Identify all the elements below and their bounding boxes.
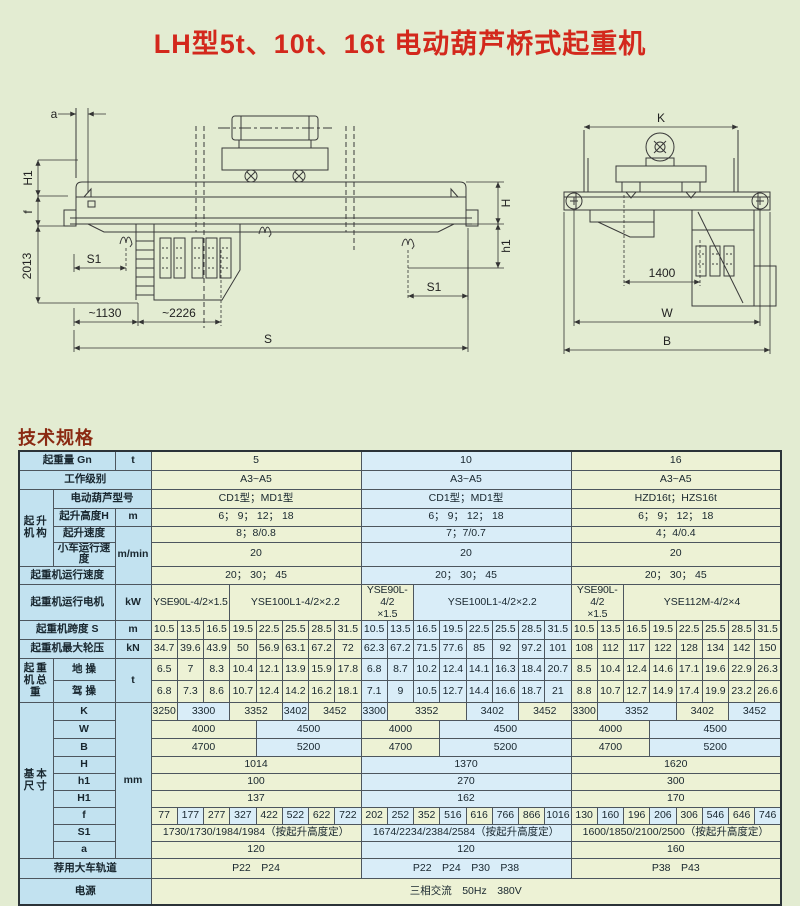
spec-cell: 4700 bbox=[151, 739, 256, 757]
spec-cell: 300 bbox=[571, 774, 781, 791]
spec-cell: 34.7 bbox=[151, 640, 177, 659]
spec-cell: YSE112M-4/2×4 bbox=[624, 585, 782, 621]
spec-cell: 16.6 bbox=[492, 681, 518, 703]
spec-cell: 7.3 bbox=[177, 681, 203, 703]
dim-label-s1-left: S1 bbox=[87, 252, 102, 266]
dim-label-w: W bbox=[661, 306, 673, 320]
spec-cell: P38 P43 bbox=[571, 859, 781, 879]
spec-cell: 56.9 bbox=[256, 640, 282, 659]
spec-cell: 10.5 bbox=[361, 621, 387, 640]
technical-drawings: a H1 f 2013 S1 ~1130 ~2226 S H h1 S1 bbox=[8, 100, 794, 400]
spec-cell: 3402 bbox=[466, 703, 519, 721]
spec-cell: 12.4 bbox=[256, 681, 282, 703]
spec-cell: 4500 bbox=[650, 721, 781, 739]
spec-cell: A3~A5 bbox=[151, 470, 361, 489]
label-basic-dimensions: 基本 尺寸 bbox=[19, 703, 53, 859]
spec-cell: 28.5 bbox=[309, 621, 335, 640]
spec-cell: 134 bbox=[702, 640, 728, 659]
spec-cell: 6； 9； 12； 18 bbox=[151, 508, 361, 526]
section-heading: 技术规格 bbox=[18, 424, 94, 450]
spec-cell: 646 bbox=[729, 808, 755, 825]
spec-cell: 62.3 bbox=[361, 640, 387, 659]
spec-cell: 3250 bbox=[151, 703, 177, 721]
spec-cell: 120 bbox=[151, 842, 361, 859]
spec-cell: 17.8 bbox=[335, 659, 361, 681]
spec-cell: 108 bbox=[571, 640, 597, 659]
spec-cell: 20.7 bbox=[545, 659, 571, 681]
spec-cell: 13.5 bbox=[597, 621, 623, 640]
spec-cell: 92 bbox=[492, 640, 518, 659]
spec-cell: 21 bbox=[545, 681, 571, 703]
dim-label-2226: ~2226 bbox=[162, 306, 196, 320]
spec-cell: YSE90L-4/2 ×1.5 bbox=[571, 585, 624, 621]
label-lift-speed: 起升速度 bbox=[53, 526, 115, 542]
spec-cell: 4000 bbox=[361, 721, 440, 739]
dim-label-f: f bbox=[21, 210, 35, 214]
label-total-weight: 起重 机总 重 bbox=[19, 659, 53, 703]
spec-cell: 50 bbox=[230, 640, 256, 659]
spec-cell: 26.3 bbox=[755, 659, 781, 681]
spec-cell: 5200 bbox=[256, 739, 361, 757]
spec-cell: 252 bbox=[387, 808, 413, 825]
spec-cell: 8.5 bbox=[571, 659, 597, 681]
spec-cell: 120 bbox=[361, 842, 571, 859]
dim-label-h1-left: H1 bbox=[21, 170, 35, 186]
spec-cell: 4700 bbox=[361, 739, 440, 757]
spec-cell: 1016 bbox=[545, 808, 571, 825]
spec-cell: 101 bbox=[545, 640, 571, 659]
spec-cell: 3300 bbox=[571, 703, 597, 721]
spec-cell: CD1型；MD1型 bbox=[361, 489, 571, 508]
spec-cell: 3452 bbox=[309, 703, 362, 721]
spec-cell: 25.5 bbox=[702, 621, 728, 640]
label-recommended-rail: 荐用大车轨道 bbox=[19, 859, 151, 879]
spec-cell: 10.7 bbox=[230, 681, 256, 703]
spec-cell: 17.4 bbox=[676, 681, 702, 703]
spec-cell: YSE100L1-4/2×2.2 bbox=[414, 585, 572, 621]
capacity-5t: 5 bbox=[151, 451, 361, 470]
unit-capacity: t bbox=[115, 451, 151, 470]
spec-cell: 19.5 bbox=[230, 621, 256, 640]
dim-label-h1-right: h1 bbox=[499, 239, 513, 253]
end-view-dimension-labels: K 1400 W B bbox=[649, 111, 676, 348]
spec-cell: 67.2 bbox=[387, 640, 413, 659]
spec-cell: 616 bbox=[466, 808, 492, 825]
spec-cell: P22 P24 bbox=[151, 859, 361, 879]
spec-cell: 25.5 bbox=[282, 621, 308, 640]
label-dim-B: B bbox=[53, 739, 115, 757]
spec-cell: 8.6 bbox=[204, 681, 230, 703]
spec-cell: 14.2 bbox=[282, 681, 308, 703]
spec-cell: 97.2 bbox=[519, 640, 545, 659]
spec-cell: 1674/2234/2384/2584（按起升高度定） bbox=[361, 825, 571, 842]
spec-cell: 4500 bbox=[256, 721, 361, 739]
spec-cell: 8.3 bbox=[204, 659, 230, 681]
spec-cell: 20； 30； 45 bbox=[571, 567, 781, 585]
spec-cell: 12.4 bbox=[624, 659, 650, 681]
label-travel-motor: 起重机运行电机 bbox=[19, 585, 115, 621]
spec-cell: 13.9 bbox=[282, 659, 308, 681]
spec-cell: 3402 bbox=[282, 703, 308, 721]
section-break-lines bbox=[196, 126, 354, 328]
spec-cell: 1600/1850/2100/2500（按起升高度定） bbox=[571, 825, 781, 842]
spec-cell: 4000 bbox=[571, 721, 650, 739]
label-dim-S1: S1 bbox=[53, 825, 115, 842]
crane-front-view-drawing: a H1 f 2013 S1 ~1130 ~2226 S H h1 S1 bbox=[8, 100, 540, 400]
spec-cell: 722 bbox=[335, 808, 361, 825]
spec-cell: 196 bbox=[624, 808, 650, 825]
spec-cell: 22.9 bbox=[729, 659, 755, 681]
spec-cell: 12.4 bbox=[440, 659, 466, 681]
spec-cell: 270 bbox=[361, 774, 571, 791]
spec-cell: 31.5 bbox=[335, 621, 361, 640]
spec-cell: 22.5 bbox=[256, 621, 282, 640]
spec-cell: 14.4 bbox=[466, 681, 492, 703]
spec-cell: 16.2 bbox=[309, 681, 335, 703]
spec-cell: 3402 bbox=[676, 703, 729, 721]
label-power-supply: 电源 bbox=[19, 879, 151, 905]
spec-cell: 170 bbox=[571, 791, 781, 808]
spec-cell: 7.1 bbox=[361, 681, 387, 703]
spec-cell: kN bbox=[115, 640, 151, 659]
hoist-trolley-outline bbox=[218, 116, 332, 182]
label-duty-class: 工作级别 bbox=[19, 470, 151, 489]
spec-cell: 10.7 bbox=[597, 681, 623, 703]
spec-cell: 20； 30； 45 bbox=[151, 567, 361, 585]
spec-cell: 14.9 bbox=[650, 681, 676, 703]
spec-cell: 10.5 bbox=[414, 681, 440, 703]
spec-cell: 31.5 bbox=[755, 621, 781, 640]
spec-cell: 16.3 bbox=[492, 659, 518, 681]
spec-cell: 622 bbox=[309, 808, 335, 825]
spec-cell: 19.6 bbox=[702, 659, 728, 681]
spec-cell: 31.5 bbox=[545, 621, 571, 640]
spec-cell: 16.5 bbox=[204, 621, 230, 640]
spec-cell: m bbox=[115, 508, 151, 526]
label-hoist-mechanism: 起升 机构 bbox=[19, 489, 53, 567]
spec-cell: 6； 9； 12； 18 bbox=[361, 508, 571, 526]
spec-cell: 85 bbox=[466, 640, 492, 659]
spec-cell: 10.4 bbox=[230, 659, 256, 681]
spec-cell: 18.1 bbox=[335, 681, 361, 703]
spec-cell: 3452 bbox=[519, 703, 572, 721]
label-crane-speed: 起重机运行速度 bbox=[19, 567, 115, 585]
spec-cell: 20 bbox=[361, 542, 571, 567]
spec-cell: A3~A5 bbox=[571, 470, 781, 489]
spec-cell: 112 bbox=[597, 640, 623, 659]
dim-label-span-s: S bbox=[264, 332, 272, 346]
spec-cell: A3~A5 bbox=[361, 470, 571, 489]
spec-cell: 10.5 bbox=[571, 621, 597, 640]
spec-cell: 327 bbox=[230, 808, 256, 825]
dim-label-s1-right: S1 bbox=[427, 280, 442, 294]
spec-cell: 63.1 bbox=[282, 640, 308, 659]
spec-cell: 12.1 bbox=[256, 659, 282, 681]
spec-cell: HZD16t；HZS16t bbox=[571, 489, 781, 508]
spec-cell: 522 bbox=[282, 808, 308, 825]
spec-cell: 28.5 bbox=[729, 621, 755, 640]
dim-label-1400: 1400 bbox=[649, 266, 676, 280]
spec-cell: 1370 bbox=[361, 757, 571, 774]
spec-cell: 8.8 bbox=[571, 681, 597, 703]
spec-cell: 16.5 bbox=[414, 621, 440, 640]
spec-cell: 766 bbox=[492, 808, 518, 825]
spec-cell: 10.5 bbox=[151, 621, 177, 640]
spec-cell: mm bbox=[115, 703, 151, 859]
spec-cell: 13.5 bbox=[387, 621, 413, 640]
spec-cell: t bbox=[115, 659, 151, 703]
spec-cell: 6.5 bbox=[151, 659, 177, 681]
spec-cell: 39.6 bbox=[177, 640, 203, 659]
spec-cell: 150 bbox=[755, 640, 781, 659]
spec-cell: 18.7 bbox=[519, 681, 545, 703]
spec-cell: 67.2 bbox=[309, 640, 335, 659]
spec-cell: 19.5 bbox=[650, 621, 676, 640]
spec-cell: 1730/1730/1984/1984（按起升高度定） bbox=[151, 825, 361, 842]
label-dim-h1: h1 bbox=[53, 774, 115, 791]
capacity-16t: 16 bbox=[571, 451, 781, 470]
spec-cell: 4700 bbox=[571, 739, 650, 757]
spec-cell: 26.6 bbox=[755, 681, 781, 703]
spec-cell: 306 bbox=[676, 808, 702, 825]
spec-cell: 4500 bbox=[440, 721, 571, 739]
spec-cell: 22.5 bbox=[676, 621, 702, 640]
label-trolley-speed: 小车运行速度 bbox=[53, 542, 115, 567]
spec-cell: 137 bbox=[151, 791, 361, 808]
spec-cell: 7 bbox=[177, 659, 203, 681]
spec-cell: 5200 bbox=[650, 739, 781, 757]
spec-cell: 13.5 bbox=[177, 621, 203, 640]
spec-cell: 7；7/0.7 bbox=[361, 526, 571, 542]
spec-cell: 20 bbox=[571, 542, 781, 567]
spec-cell: 866 bbox=[519, 808, 545, 825]
spec-cell: 277 bbox=[204, 808, 230, 825]
spec-cell: 14.1 bbox=[466, 659, 492, 681]
capacity-10t: 10 bbox=[361, 451, 571, 470]
spec-cell: 160 bbox=[571, 842, 781, 859]
spec-cell: kW bbox=[115, 585, 151, 621]
spec-cell: 6.8 bbox=[361, 659, 387, 681]
spec-cell: 422 bbox=[256, 808, 282, 825]
label-max-wheel-load: 起重机最大轮压 bbox=[19, 640, 115, 659]
spec-cell: 206 bbox=[650, 808, 676, 825]
dim-label-a: a bbox=[51, 107, 58, 121]
spec-cell: 20； 30； 45 bbox=[361, 567, 571, 585]
spec-cell: 3452 bbox=[729, 703, 782, 721]
label-capacity: 起重量 Gn bbox=[19, 451, 115, 470]
label-ground-operated: 地 操 bbox=[53, 659, 115, 681]
page-title: LH型5t、10t、16t 电动葫芦桥式起重机 bbox=[0, 22, 800, 61]
spec-cell: 14.6 bbox=[650, 659, 676, 681]
spec-cell: 162 bbox=[361, 791, 571, 808]
spec-cell: 25.5 bbox=[492, 621, 518, 640]
dim-label-b: B bbox=[663, 334, 671, 348]
spec-cell: YSE100L1-4/2×2.2 bbox=[230, 585, 361, 621]
spec-cell: CD1型；MD1型 bbox=[151, 489, 361, 508]
dim-label-h: H bbox=[499, 199, 513, 208]
spec-cell: 18.4 bbox=[519, 659, 545, 681]
spec-cell: 6.8 bbox=[151, 681, 177, 703]
spec-cell: 15.9 bbox=[309, 659, 335, 681]
spec-cell: 12.7 bbox=[624, 681, 650, 703]
spec-cell: 43.9 bbox=[204, 640, 230, 659]
spec-cell: 546 bbox=[702, 808, 728, 825]
spec-cell: 352 bbox=[414, 808, 440, 825]
spec-cell: 10.2 bbox=[414, 659, 440, 681]
dim-label-2013: 2013 bbox=[20, 252, 34, 279]
spec-cell: 10.4 bbox=[597, 659, 623, 681]
label-dim-H1: H1 bbox=[53, 791, 115, 808]
spec-table: 起重量 Gnt51016工作级别A3~A5A3~A5A3~A5起升 机构电动葫芦… bbox=[18, 450, 782, 906]
spec-cell: 3300 bbox=[361, 703, 387, 721]
spec-cell: 3352 bbox=[387, 703, 466, 721]
label-dim-K: K bbox=[53, 703, 115, 721]
spec-cell: 77 bbox=[151, 808, 177, 825]
spec-cell: 117 bbox=[624, 640, 650, 659]
label-cab-operated: 驾 操 bbox=[53, 681, 115, 703]
spec-cell: 122 bbox=[650, 640, 676, 659]
spec-cell: 746 bbox=[755, 808, 781, 825]
spec-cell: 1620 bbox=[571, 757, 781, 774]
label-lift-height: 起升高度H bbox=[53, 508, 115, 526]
spec-cell: 19.5 bbox=[440, 621, 466, 640]
spec-cell: P22 P24 P30 P38 bbox=[361, 859, 571, 879]
spec-cell: 8；8/0.8 bbox=[151, 526, 361, 542]
spec-cell: 128 bbox=[676, 640, 702, 659]
spec-cell: 3352 bbox=[230, 703, 283, 721]
spec-cell: 28.5 bbox=[519, 621, 545, 640]
spec-cell: 177 bbox=[177, 808, 203, 825]
spec-cell: 20 bbox=[151, 542, 361, 567]
label-dim-H: H bbox=[53, 757, 115, 774]
spec-cell: 17.1 bbox=[676, 659, 702, 681]
spec-cell: 142 bbox=[729, 640, 755, 659]
spec-cell: 4；4/0.4 bbox=[571, 526, 781, 542]
spec-cell: YSE90L-4/2 ×1.5 bbox=[361, 585, 414, 621]
spec-cell: 202 bbox=[361, 808, 387, 825]
spec-cell: 130 bbox=[571, 808, 597, 825]
spec-cell: 16.5 bbox=[624, 621, 650, 640]
label-span: 起重机跨度 S bbox=[19, 621, 115, 640]
spec-cell: 1014 bbox=[151, 757, 361, 774]
label-hoist-model: 电动葫芦型号 bbox=[53, 489, 151, 508]
spec-cell: 22.5 bbox=[466, 621, 492, 640]
spec-cell: 71.5 bbox=[414, 640, 440, 659]
spec-cell: 19.9 bbox=[702, 681, 728, 703]
spec-cell: 8.7 bbox=[387, 659, 413, 681]
spec-cell: 72 bbox=[335, 640, 361, 659]
label-dim-W: W bbox=[53, 721, 115, 739]
spec-cell: m/min bbox=[115, 526, 151, 585]
spec-cell: 5200 bbox=[440, 739, 571, 757]
spec-cell: m bbox=[115, 621, 151, 640]
dim-label-k: K bbox=[657, 111, 665, 125]
spec-cell: 3300 bbox=[177, 703, 230, 721]
spec-cell: 160 bbox=[597, 808, 623, 825]
dim-label-1130: ~1130 bbox=[89, 306, 122, 320]
spec-cell: 6； 9； 12； 18 bbox=[571, 508, 781, 526]
driver-cab-outline bbox=[136, 224, 240, 300]
power-supply-value: 三相交流 50Hz 380V bbox=[151, 879, 781, 905]
label-dim-a: a bbox=[53, 842, 115, 859]
spec-cell: 100 bbox=[151, 774, 361, 791]
spec-cell: YSE90L-4/2×1.5 bbox=[151, 585, 230, 621]
label-dim-f: f bbox=[53, 808, 115, 825]
spec-cell: 516 bbox=[440, 808, 466, 825]
spec-cell: 77.6 bbox=[440, 640, 466, 659]
spec-cell: 12.7 bbox=[440, 681, 466, 703]
spec-cell: 9 bbox=[387, 681, 413, 703]
spec-cell: 23.2 bbox=[729, 681, 755, 703]
crane-end-view-drawing: K 1400 W B bbox=[540, 100, 794, 400]
spec-cell: 4000 bbox=[151, 721, 256, 739]
spec-cell: 3352 bbox=[597, 703, 676, 721]
